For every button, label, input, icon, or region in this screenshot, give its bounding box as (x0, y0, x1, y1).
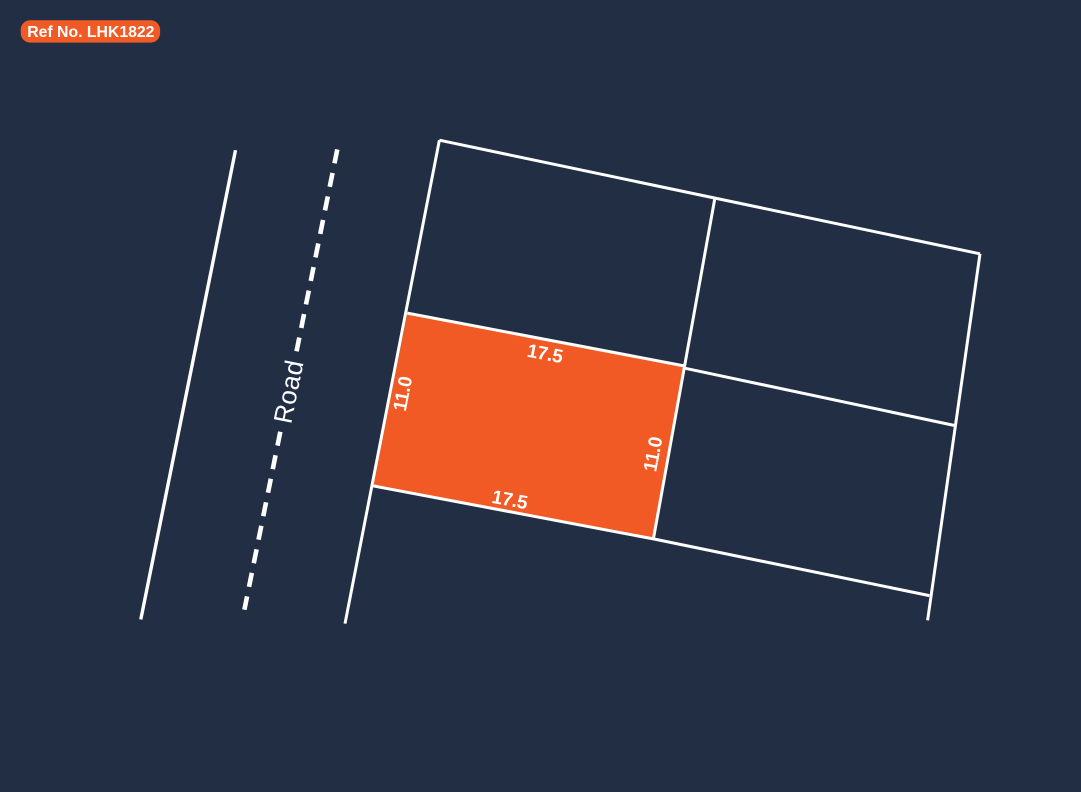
svg-text:Ref No. LHK1822: Ref No. LHK1822 (27, 24, 154, 41)
